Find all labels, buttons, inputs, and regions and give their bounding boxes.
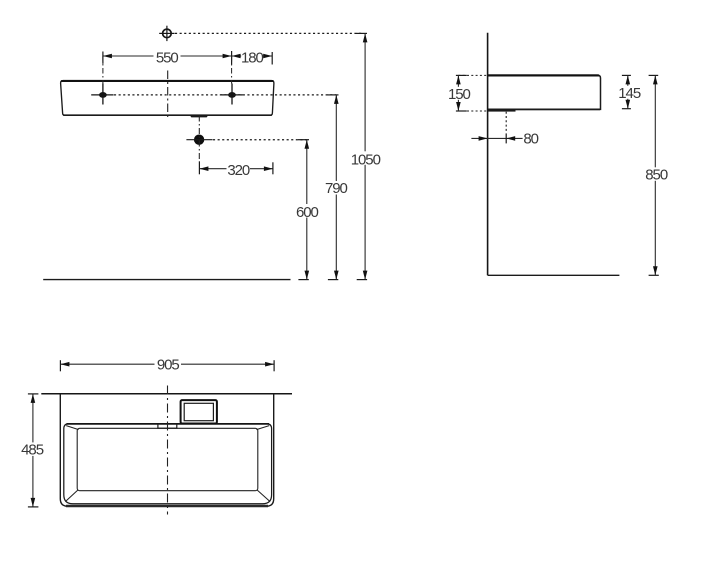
svg-text:180: 180 xyxy=(241,50,264,67)
svg-text:600: 600 xyxy=(296,204,319,221)
svg-text:790: 790 xyxy=(325,180,348,197)
svg-text:80: 80 xyxy=(523,130,538,147)
svg-text:1050: 1050 xyxy=(351,151,381,168)
svg-text:145: 145 xyxy=(618,85,641,102)
svg-text:850: 850 xyxy=(645,167,668,184)
svg-text:905: 905 xyxy=(157,357,180,374)
svg-text:150: 150 xyxy=(448,86,471,103)
svg-text:550: 550 xyxy=(156,50,179,67)
svg-text:320: 320 xyxy=(227,162,250,179)
svg-text:485: 485 xyxy=(21,441,44,458)
